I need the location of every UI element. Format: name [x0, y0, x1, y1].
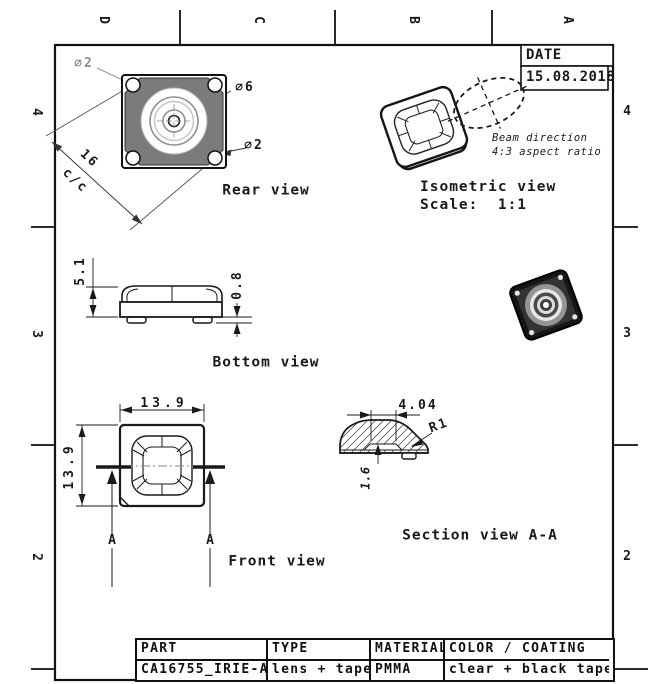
bottom-view-drawing: [86, 258, 252, 337]
front-view-title: Front view: [228, 554, 325, 569]
table-header-material: MATERIAL: [371, 640, 445, 661]
table-header-type: TYPE: [268, 640, 371, 661]
table-header-part: PART: [137, 640, 268, 661]
bottom-view-title: Bottom view: [212, 355, 319, 370]
zone-row-4-right: 4: [623, 105, 631, 119]
date-value: 15.08.2018: [526, 70, 615, 85]
zone-column-c: C: [251, 16, 265, 24]
rear-view-title: Rear view: [222, 183, 310, 198]
zone-column-d: D: [96, 16, 110, 24]
zone-row-3-right: 3: [623, 327, 631, 341]
table-value-color-coating: clear + black tape: [445, 661, 609, 680]
zone-column-a: A: [560, 16, 574, 24]
rear-dia2-bottom-dim: ∅2: [244, 139, 264, 153]
zone-row-2-left: 2: [29, 553, 43, 561]
zone-row-2-right: 2: [623, 550, 631, 564]
beam-direction-note: Beam direction: [492, 133, 588, 144]
rear-dia6-dim: ∅6: [235, 81, 255, 95]
table-value-type: lens + tape: [268, 661, 371, 680]
zone-row-4-left: 4: [29, 108, 43, 116]
zone-row-3-left: 3: [29, 330, 43, 338]
front-width-dim: 13.9: [140, 397, 187, 411]
bottom-tape-dim: 0.8: [231, 270, 245, 299]
rear-isometric-drawing: [508, 268, 584, 341]
scale-note: Scale: 1:1: [420, 198, 527, 213]
table-header-color-coating: COLOR / COATING: [445, 640, 609, 661]
parts-table: PART TYPE MATERIAL COLOR / COATING CA167…: [135, 638, 615, 682]
front-view-drawing: [76, 404, 225, 587]
isometric-view-title: Isometric view: [420, 180, 556, 195]
zone-column-b: B: [406, 16, 420, 24]
section-view-drawing: [322, 410, 452, 464]
table-value-part: CA16755_IRIE-A: [137, 661, 268, 680]
table-value-material: PMMA: [371, 661, 445, 680]
section-width-dim: 4.04: [398, 399, 437, 413]
rear-dia2-top-dim: ∅2: [74, 57, 94, 71]
isometric-view-drawing: [379, 85, 471, 172]
section-marker-a-left: A: [106, 534, 118, 548]
rear-view-drawing: [46, 68, 246, 230]
aspect-ratio-note: 4:3 aspect ratio: [492, 147, 601, 158]
drawing-lineart: [0, 0, 650, 684]
section-marker-a-right: A: [204, 534, 216, 548]
front-height-dim: 13.9: [63, 442, 77, 489]
date-label: DATE: [526, 48, 562, 63]
section-view-title: Section view A-A: [402, 528, 558, 543]
drawing-sheet: D C B A 4 3 2 4 3 2 DATE 15.08.2018 ∅2 ∅…: [0, 0, 650, 684]
bottom-height-dim: 5.1: [74, 256, 88, 285]
section-depth-dim: 1.6: [360, 466, 373, 489]
